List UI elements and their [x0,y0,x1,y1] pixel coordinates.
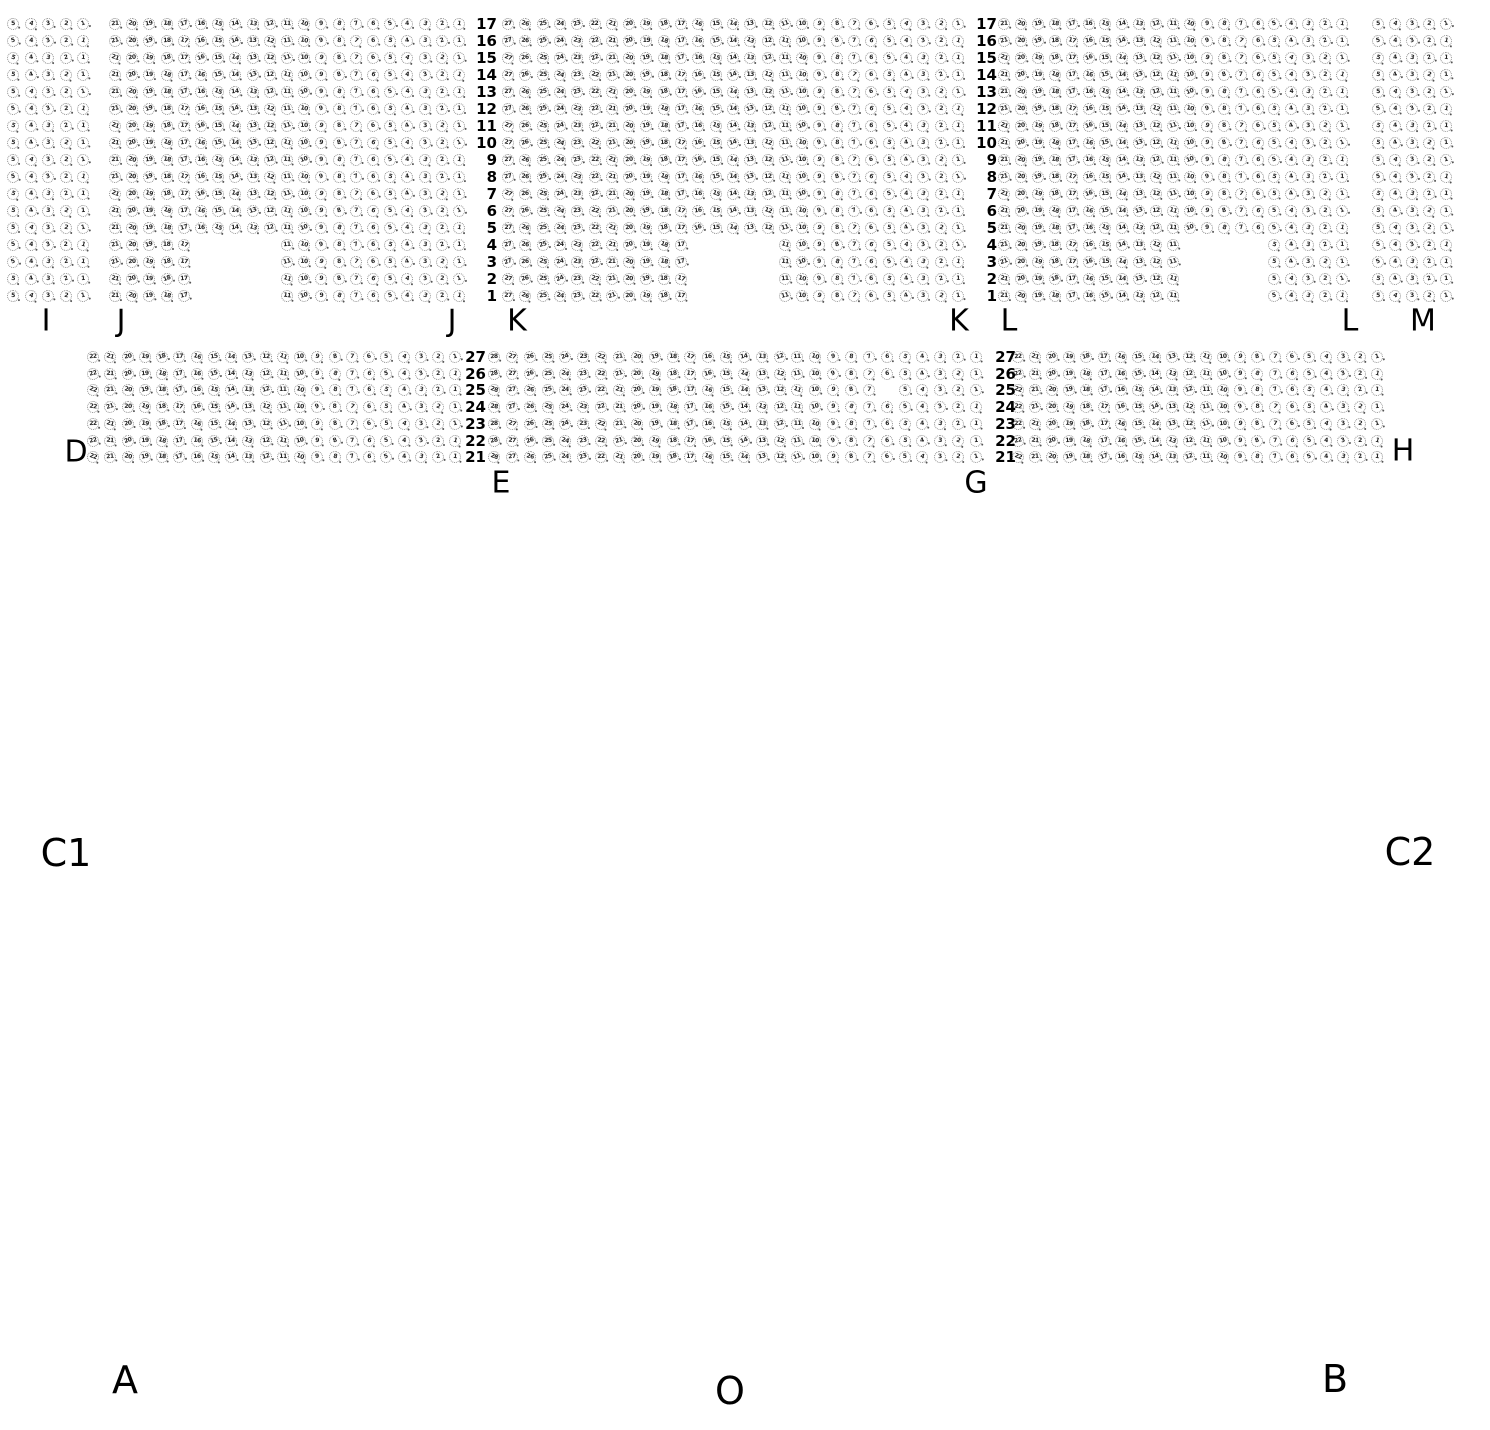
seat[interactable]: 20 [125,221,140,236]
seat[interactable]: 10 [809,451,822,464]
seat[interactable]: 11 [778,120,791,133]
seat[interactable]: 10 [795,204,809,218]
seat[interactable]: 6 [366,221,380,235]
seat[interactable]: 16 [692,204,706,218]
seat[interactable]: 14 [225,368,237,380]
seat[interactable]: 3 [414,401,427,414]
seat[interactable]: 3 [1301,136,1315,150]
seat[interactable]: 20 [1014,238,1027,251]
seat[interactable]: 4 [1284,254,1299,269]
seat[interactable]: 2 [1318,187,1333,202]
seat[interactable]: 9 [812,288,827,303]
seat[interactable]: 19 [1031,119,1045,133]
seat[interactable]: 2 [59,103,71,115]
seat[interactable]: 11 [280,136,295,151]
seat[interactable]: 5 [1371,170,1385,184]
seat[interactable]: 18 [656,169,671,184]
seat[interactable]: 22 [595,451,607,463]
seat[interactable]: 1 [969,350,982,363]
seat[interactable]: 11 [778,187,791,200]
seat[interactable]: 8 [331,153,346,168]
seat[interactable]: 6 [1251,171,1263,183]
seat[interactable]: 1 [950,169,965,184]
seat[interactable]: 3 [417,17,432,32]
seat[interactable]: 12 [761,171,773,183]
seat[interactable]: 18 [160,187,174,201]
seat[interactable]: 21 [997,238,1011,252]
seat[interactable]: 2 [1353,383,1367,397]
seat[interactable]: 17 [675,239,688,252]
seat[interactable]: 9 [1200,170,1214,184]
seat[interactable]: 11 [1198,349,1213,364]
seat[interactable]: 4 [1388,68,1403,83]
seat[interactable]: 12 [1183,417,1196,430]
seat[interactable]: 18 [1080,451,1093,464]
seat[interactable]: 9 [311,384,324,397]
seat[interactable]: 7 [1267,450,1281,464]
seat[interactable]: 3 [1405,17,1419,31]
seat[interactable]: 2 [435,85,448,98]
seat[interactable]: 19 [137,400,152,415]
seat[interactable]: 17 [683,367,697,381]
seat[interactable]: 5 [1371,68,1385,82]
seat[interactable]: 14 [1115,238,1130,253]
seat[interactable]: 17 [176,238,191,253]
seat[interactable]: 7 [345,417,358,430]
seat[interactable]: 21 [104,384,117,397]
seat[interactable]: 3 [933,384,947,398]
seat[interactable]: 20 [1045,383,1059,397]
seat[interactable]: 17 [176,17,191,32]
seat[interactable]: 21 [997,272,1011,286]
seat[interactable]: 12 [263,69,276,82]
seat[interactable]: 21 [998,86,1010,98]
seat[interactable]: 20 [120,366,135,381]
seat[interactable]: 4 [400,204,414,218]
seat[interactable]: 21 [996,186,1011,201]
seat[interactable]: 15 [709,18,722,31]
seat[interactable]: 8 [331,221,346,236]
seat[interactable]: 19 [648,450,662,464]
seat[interactable]: 19 [142,33,157,48]
seat[interactable]: 19 [142,51,156,65]
seat[interactable]: 16 [194,34,208,48]
seat[interactable]: 7 [1233,33,1248,48]
seat[interactable]: 19 [1063,434,1075,446]
seat[interactable]: 5 [7,86,19,98]
seat[interactable]: 10 [1182,16,1197,31]
seat[interactable]: 5 [881,68,895,82]
seat[interactable]: 23 [570,289,584,303]
seat[interactable]: 12 [760,135,775,150]
seat[interactable]: 11 [778,136,791,149]
seat[interactable]: 10 [809,434,822,447]
seat[interactable]: 1 [1336,239,1348,251]
seat[interactable]: 13 [242,401,255,414]
seat[interactable]: 11 [790,434,804,448]
seat[interactable]: 12 [761,85,774,98]
seat[interactable]: 12 [761,17,774,30]
seat[interactable]: 4 [1388,153,1403,168]
seat[interactable]: 18 [155,451,168,464]
seat[interactable]: 11 [1166,187,1181,202]
seat[interactable]: 7 [349,273,362,286]
seat[interactable]: 4 [1285,86,1297,98]
seat[interactable]: 13 [246,17,260,31]
seat[interactable]: 3 [916,102,931,117]
seat[interactable]: 3 [934,451,947,464]
seat[interactable]: 4 [900,188,912,200]
seat[interactable]: 11 [1166,136,1181,151]
seat[interactable]: 20 [125,17,140,32]
seat[interactable]: 8 [327,366,342,381]
seat[interactable]: 7 [862,451,875,464]
seat[interactable]: 17 [1064,170,1079,185]
seat[interactable]: 3 [1404,101,1419,116]
seat[interactable]: 2 [1318,119,1333,134]
seat[interactable]: 7 [847,119,861,133]
seat[interactable]: 1 [453,239,465,251]
seat[interactable]: 21 [605,238,619,252]
seat[interactable]: 11 [1166,170,1179,183]
seat[interactable]: 6 [366,289,380,303]
seat[interactable]: 18 [1047,67,1062,82]
seat[interactable]: 23 [571,119,584,132]
seat[interactable]: 13 [744,205,756,217]
seat[interactable]: 14 [1115,102,1130,117]
seat[interactable]: 11 [280,170,293,183]
seat[interactable]: 13 [744,69,756,81]
seat[interactable]: 9 [1201,154,1213,166]
seat[interactable]: 5 [379,400,393,414]
seat[interactable]: 9 [827,401,840,414]
seat[interactable]: 27 [502,18,515,31]
seat[interactable]: 20 [125,153,140,168]
seat[interactable]: 5 [1267,16,1282,31]
seat[interactable]: 1 [1336,35,1348,47]
seat[interactable]: 4 [24,51,37,64]
seat[interactable]: 24 [552,271,567,286]
seat[interactable]: 12 [772,416,787,431]
seat[interactable]: 24 [558,433,573,448]
seat[interactable]: 11 [777,153,792,168]
seat[interactable]: 5 [383,85,398,100]
seat[interactable]: 21 [108,68,122,82]
seat[interactable]: 3 [1405,51,1419,65]
seat[interactable]: 24 [553,221,567,235]
seat[interactable]: 16 [1081,255,1096,270]
seat[interactable]: 11 [1166,221,1179,234]
seat[interactable]: 11 [1199,433,1213,447]
seat[interactable]: 17 [177,68,190,81]
seat[interactable]: 19 [1031,205,1044,218]
seat[interactable]: 7 [349,51,363,65]
seat[interactable]: 18 [657,137,669,149]
seat[interactable]: 2 [59,17,72,30]
seat[interactable]: 18 [658,205,670,217]
seat[interactable]: 3 [41,255,56,270]
seat[interactable]: 12 [1149,34,1164,49]
seat[interactable]: 21 [998,154,1010,166]
seat[interactable]: 6 [880,367,894,381]
seat[interactable]: 4 [1284,68,1298,82]
seat[interactable]: 6 [880,351,892,363]
seat[interactable]: 5 [5,118,20,133]
seat[interactable]: 13 [1133,239,1146,252]
seat[interactable]: 10 [1182,84,1197,99]
seat[interactable]: 17 [173,351,185,363]
seat[interactable]: 11 [778,102,793,117]
seat[interactable]: 19 [142,255,157,270]
seat[interactable]: 13 [1132,135,1147,150]
seat[interactable]: 20 [125,288,140,303]
seat[interactable]: 18 [159,135,174,150]
seat[interactable]: 5 [1267,85,1282,100]
seat[interactable]: 21 [109,86,121,98]
seat[interactable]: 10 [298,272,311,285]
seat[interactable]: 19 [1063,350,1076,363]
seat[interactable]: 3 [1336,350,1350,364]
seat[interactable]: 13 [1165,350,1180,365]
seat[interactable]: 5 [882,221,895,234]
seat[interactable]: 5 [383,221,398,236]
seat[interactable]: 20 [1014,272,1028,286]
seat[interactable]: 21 [103,400,118,415]
seat[interactable]: 14 [726,187,739,200]
seat[interactable]: 18 [160,153,174,167]
seat[interactable]: 22 [587,272,602,287]
seat[interactable]: 1 [1439,102,1454,117]
seat[interactable]: 27 [505,434,518,447]
seat[interactable]: 19 [142,238,157,253]
seat[interactable]: 2 [58,135,73,150]
seat[interactable]: 19 [1031,85,1045,99]
seat[interactable]: 23 [570,34,585,49]
seat[interactable]: 15 [709,204,723,218]
seat[interactable]: 11 [275,416,290,431]
seat[interactable]: 7 [862,417,877,432]
seat[interactable]: 15 [212,52,225,65]
seat[interactable]: 3 [916,204,930,218]
seat[interactable]: 12 [1149,255,1163,269]
seat[interactable]: 10 [809,384,822,397]
seat[interactable]: 10 [794,186,809,201]
seat[interactable]: 2 [1422,85,1436,99]
seat[interactable]: 21 [1029,434,1042,447]
seat[interactable]: 12 [1150,273,1162,285]
seat[interactable]: 11 [791,418,803,430]
seat[interactable]: 6 [366,68,381,83]
seat[interactable]: 12 [1182,383,1197,398]
seat[interactable]: 4 [1389,256,1402,269]
seat[interactable]: 2 [59,153,73,167]
seat[interactable]: 19 [138,350,151,363]
seat[interactable]: 4 [899,34,913,48]
seat[interactable]: 15 [1099,188,1111,200]
seat[interactable]: 17 [172,434,186,448]
seat[interactable]: 3 [417,85,432,100]
seat[interactable]: 2 [1422,119,1436,133]
seat[interactable]: 11 [276,367,290,381]
seat[interactable]: 6 [1251,17,1264,30]
seat[interactable]: 12 [263,85,277,99]
seat[interactable]: 5 [384,204,397,217]
seat[interactable]: 13 [241,350,256,365]
seat[interactable]: 7 [861,366,876,381]
seat[interactable]: 19 [1063,417,1077,431]
seat[interactable]: 26 [519,188,532,201]
seat[interactable]: 12 [1150,69,1163,82]
seat[interactable]: 26 [519,102,532,115]
seat[interactable]: 17 [683,400,697,414]
seat[interactable]: 1 [1335,221,1349,235]
seat[interactable]: 18 [159,271,174,286]
seat[interactable]: 10 [293,383,308,398]
seat[interactable]: 1 [451,271,466,286]
seat[interactable]: 19 [648,384,661,397]
seat[interactable]: 6 [864,34,879,49]
seat[interactable]: 5 [380,418,392,430]
seat[interactable]: 3 [917,17,930,30]
seat[interactable]: 1 [76,221,91,236]
seat[interactable]: 8 [1217,170,1230,183]
seat[interactable]: 17 [674,136,689,151]
seat[interactable]: 18 [657,221,671,235]
seat[interactable]: 14 [1115,255,1130,270]
seat[interactable]: 3 [414,417,427,430]
seat[interactable]: 6 [362,433,377,448]
seat[interactable]: 5 [1372,154,1384,166]
seat[interactable]: 20 [1014,51,1027,64]
seat[interactable]: 4 [24,256,37,269]
seat[interactable]: 3 [1301,204,1315,218]
seat[interactable]: 4 [24,35,37,48]
seat[interactable]: 3 [42,273,55,286]
seat[interactable]: 6 [366,187,380,201]
seat[interactable]: 6 [1285,451,1298,464]
seat[interactable]: 17 [684,451,696,463]
seat[interactable]: 24 [559,400,572,413]
seat[interactable]: 17 [176,153,191,168]
seat[interactable]: 20 [622,255,637,270]
seat[interactable]: 18 [1079,366,1094,381]
seat[interactable]: 13 [241,366,256,381]
seat[interactable]: 13 [241,450,255,464]
seat[interactable]: 4 [23,288,38,303]
seat[interactable]: 16 [194,68,208,82]
seat[interactable]: 22 [85,450,100,465]
seat[interactable]: 9 [1234,384,1247,397]
seat[interactable]: 13 [1165,450,1179,464]
seat[interactable]: 22 [594,400,608,414]
seat[interactable]: 3 [1405,289,1418,302]
seat[interactable]: 3 [41,221,54,234]
seat[interactable]: 2 [58,203,73,218]
seat[interactable]: 2 [1423,103,1435,115]
seat[interactable]: 3 [1405,255,1420,270]
seat[interactable]: 18 [656,34,671,49]
seat[interactable]: 13 [1133,103,1145,115]
seat[interactable]: 12 [259,417,272,430]
seat[interactable]: 12 [1149,17,1164,32]
seat[interactable]: 4 [1284,34,1298,48]
seat[interactable]: 8 [1250,383,1264,397]
seat[interactable]: 23 [577,418,589,430]
seat[interactable]: 5 [1267,34,1281,48]
seat[interactable]: 5 [6,102,20,116]
seat[interactable]: 19 [1030,101,1045,116]
seat[interactable]: 16 [189,400,203,414]
seat[interactable]: 2 [1318,272,1331,285]
seat[interactable]: 23 [576,367,590,381]
seat[interactable]: 20 [623,222,636,235]
seat[interactable]: 4 [23,17,38,32]
seat[interactable]: 20 [623,290,636,303]
seat[interactable]: 2 [431,450,445,464]
seat[interactable]: 2 [1354,435,1366,447]
seat[interactable]: 19 [139,434,151,446]
seat[interactable]: 6 [864,237,879,252]
seat[interactable]: 19 [143,69,155,81]
seat[interactable]: 5 [881,255,896,270]
seat[interactable]: 4 [916,417,929,430]
seat[interactable]: 1 [452,119,466,133]
seat[interactable]: 1 [969,417,982,430]
seat[interactable]: 2 [434,238,449,253]
seat[interactable]: 20 [1044,366,1059,381]
seat[interactable]: 10 [809,367,822,380]
seat[interactable]: 1 [453,103,465,115]
seat[interactable]: 9 [310,417,325,432]
seat[interactable]: 18 [1048,35,1061,48]
seat[interactable]: 18 [160,35,173,48]
seat[interactable]: 5 [6,170,20,184]
seat[interactable]: 4 [898,16,913,31]
seat[interactable]: 20 [630,350,644,364]
seat[interactable]: 4 [1389,188,1402,201]
seat[interactable]: 20 [126,170,139,183]
seat[interactable]: 6 [1285,400,1298,413]
seat[interactable]: 1 [951,85,965,99]
seat[interactable]: 17 [1064,153,1079,168]
seat[interactable]: 11 [1166,272,1181,287]
seat[interactable]: 20 [121,417,135,431]
seat[interactable]: 10 [1217,417,1230,430]
seat[interactable]: 2 [1353,450,1367,464]
seat[interactable]: 27 [505,350,520,365]
seat[interactable]: 24 [553,85,567,99]
seat[interactable]: 14 [228,51,243,66]
seat[interactable]: 17 [1098,351,1110,363]
seat[interactable]: 8 [1216,68,1231,83]
seat[interactable]: 15 [1098,238,1112,252]
seat[interactable]: 5 [1370,254,1385,269]
seat[interactable]: 1 [1335,153,1349,167]
seat[interactable]: 3 [1302,188,1314,200]
seat[interactable]: 11 [280,272,295,287]
seat[interactable]: 4 [401,170,415,184]
seat[interactable]: 12 [1182,434,1195,447]
seat[interactable]: 22 [587,255,602,270]
seat[interactable]: 10 [1216,383,1231,398]
seat[interactable]: 19 [138,367,151,380]
seat[interactable]: 14 [1116,222,1129,235]
seat[interactable]: 2 [1423,171,1435,183]
seat[interactable]: 13 [755,367,768,380]
seat[interactable]: 8 [830,204,843,217]
seat[interactable]: 22 [588,222,601,235]
seat[interactable]: 9 [315,68,328,81]
